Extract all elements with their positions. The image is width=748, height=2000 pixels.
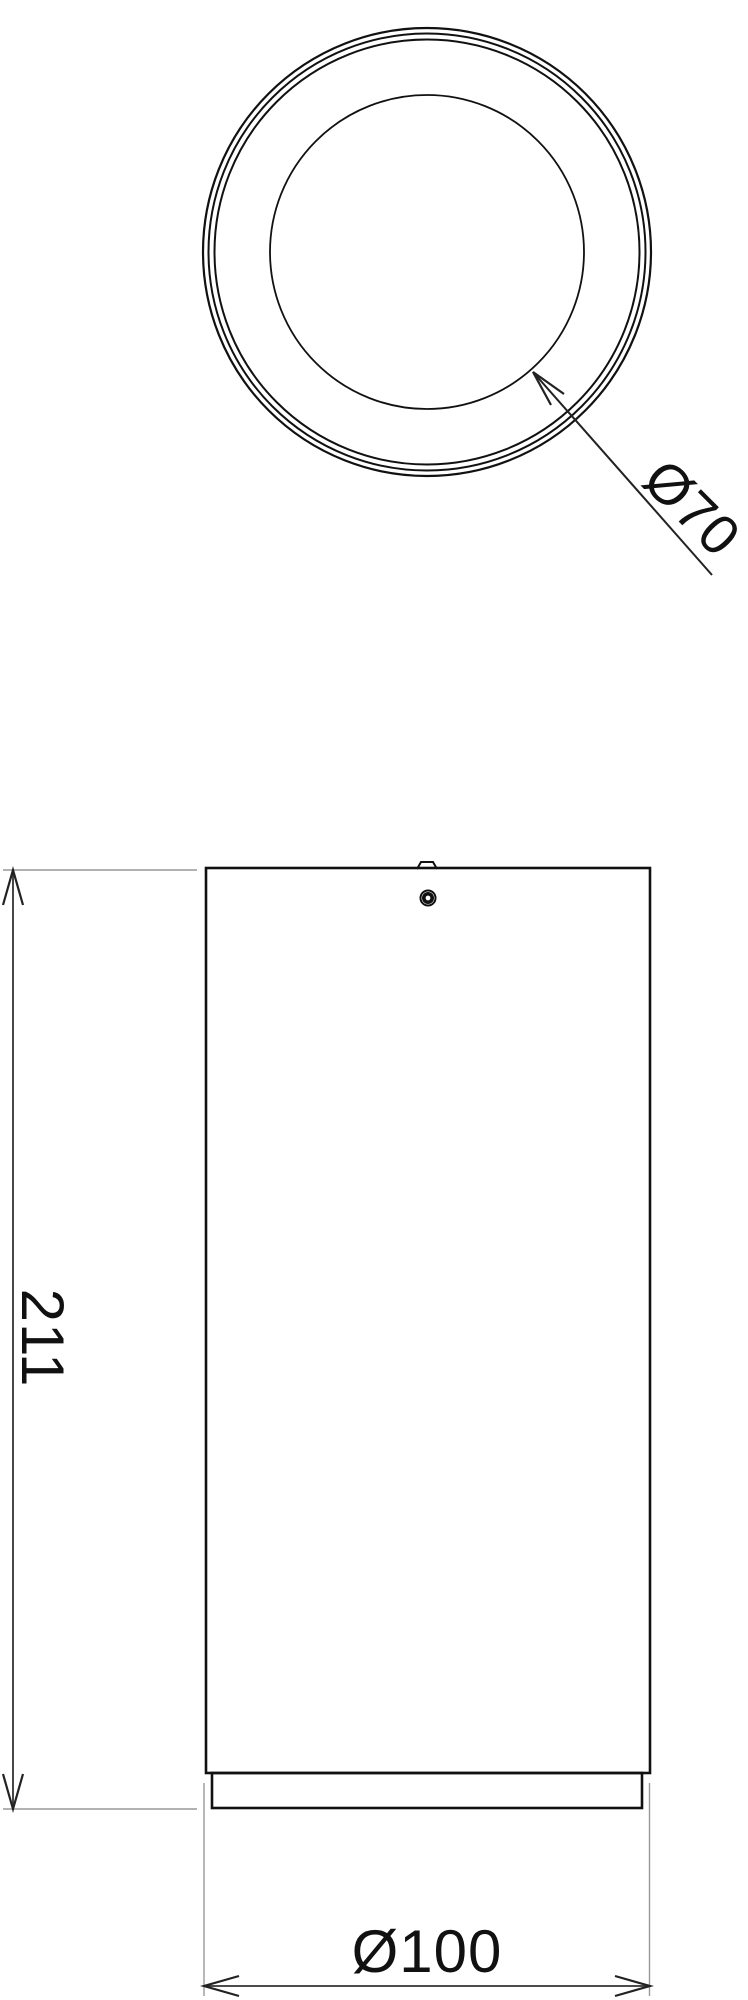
technical-drawing-sheet: Ø70 211 Ø100 bbox=[0, 0, 748, 2000]
front-view bbox=[206, 862, 650, 1808]
top-view-outer-rim-circle-2 bbox=[209, 34, 646, 471]
outer-diameter-label: Ø100 bbox=[352, 1922, 503, 1982]
drawing-canvas bbox=[0, 0, 748, 2000]
front-view-screw-inner bbox=[424, 894, 432, 902]
top-view-inner-aperture-circle bbox=[270, 95, 584, 409]
front-view-bezel-outline bbox=[212, 1773, 642, 1808]
overall-height-label: 211 bbox=[12, 1289, 72, 1388]
front-view-body-outline bbox=[206, 868, 650, 1773]
top-view-outer-rim-circle-3 bbox=[215, 40, 640, 465]
